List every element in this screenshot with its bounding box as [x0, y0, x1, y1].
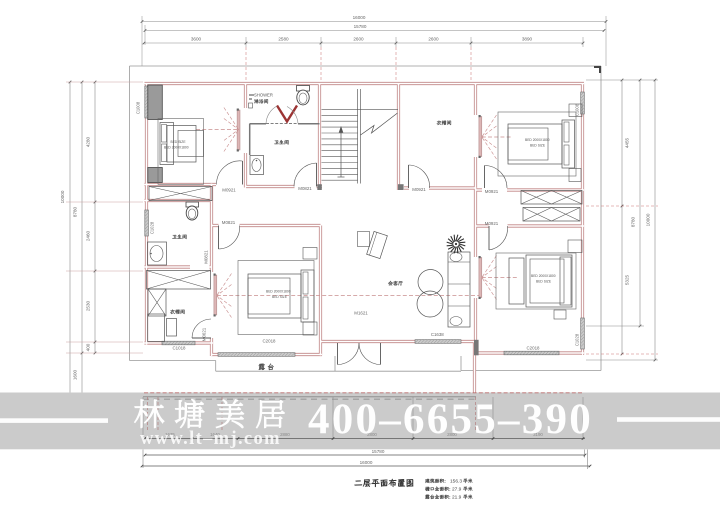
svg-text:3600: 3600 [191, 37, 202, 42]
svg-text:2600: 2600 [428, 37, 439, 42]
svg-text:C2018: C2018 [527, 346, 540, 351]
svg-text:16000: 16000 [353, 15, 366, 20]
svg-text:15780: 15780 [354, 24, 367, 29]
svg-text:C1028: C1028 [575, 333, 580, 346]
svg-text:BED 2000X1800: BED 2000X1800 [531, 274, 556, 278]
svg-text:4455: 4455 [625, 137, 630, 148]
svg-text:C1008: C1008 [136, 101, 141, 114]
svg-text:M0821: M0821 [204, 250, 209, 264]
svg-text:2580: 2580 [278, 37, 289, 42]
svg-text:27.9: 27.9 [452, 487, 462, 493]
svg-text:BED SIZE: BED SIZE [536, 280, 552, 284]
svg-text:M0621: M0621 [202, 327, 207, 341]
svg-text:C2018: C2018 [263, 339, 276, 344]
svg-text:M0821: M0821 [222, 220, 236, 225]
svg-text:2880: 2880 [280, 432, 290, 437]
svg-text:SHOWER: SHOWER [254, 93, 273, 98]
svg-text:400: 400 [86, 343, 91, 351]
svg-text:15780: 15780 [372, 449, 385, 454]
svg-text:C1638: C1638 [431, 332, 444, 337]
svg-text:BED 2000X1800: BED 2000X1800 [164, 146, 189, 150]
svg-text:BED SIZE: BED SIZE [272, 295, 288, 299]
svg-text:C1018: C1018 [173, 346, 186, 351]
svg-text:156.3: 156.3 [450, 479, 462, 485]
svg-text:2600: 2600 [353, 37, 364, 42]
svg-text:BED 2000X1800: BED 2000X1800 [525, 138, 550, 142]
svg-text:C1008: C1008 [575, 103, 580, 116]
svg-text:M0921: M0921 [485, 189, 499, 194]
svg-text:3890: 3890 [522, 37, 533, 42]
svg-text:21.9: 21.9 [452, 495, 462, 501]
svg-text:2530: 2530 [86, 300, 91, 311]
svg-text:BED 2000X1800: BED 2000X1800 [266, 290, 291, 294]
svg-text:10000: 10000 [646, 213, 651, 226]
svg-text:BED SIZE: BED SIZE [530, 144, 546, 148]
svg-text:8780: 8780 [73, 206, 78, 217]
svg-text:BED SIZE: BED SIZE [171, 140, 187, 144]
svg-text:1600: 1600 [73, 369, 78, 380]
svg-text:5325: 5325 [625, 274, 630, 285]
svg-text:M0821: M0821 [298, 186, 312, 191]
svg-text:10000: 10000 [60, 190, 65, 203]
svg-text:M0921: M0921 [222, 187, 236, 192]
svg-text:www.lt–mj.com: www.lt–mj.com [140, 429, 281, 449]
svg-text:2460: 2460 [86, 230, 91, 241]
svg-text:M1621: M1621 [354, 311, 368, 316]
svg-text:16000: 16000 [360, 460, 373, 465]
svg-text:400–6655–390: 400–6655–390 [308, 396, 593, 443]
svg-text:8780: 8780 [631, 216, 636, 227]
svg-text:M0921: M0921 [485, 221, 499, 226]
svg-text:4280: 4280 [86, 136, 91, 147]
svg-text:M0921: M0921 [412, 187, 426, 192]
svg-text:C1028: C1028 [150, 221, 155, 234]
